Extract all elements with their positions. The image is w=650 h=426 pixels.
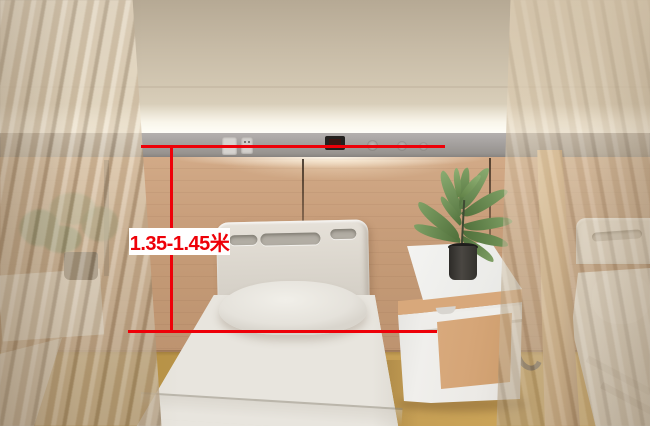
hospital-ward-render: 1.35-1.45米 bbox=[0, 0, 650, 426]
wall-panel-seam bbox=[302, 159, 304, 223]
headboard-slot bbox=[330, 229, 356, 240]
privacy-curtain-right-shading bbox=[495, 0, 650, 426]
plant-pot bbox=[449, 246, 477, 280]
switch-dot bbox=[244, 141, 246, 143]
dimension-line-bottom bbox=[128, 330, 437, 333]
headboard-slot bbox=[260, 232, 320, 245]
pillow bbox=[219, 281, 367, 335]
dimension-label: 1.35-1.45米 bbox=[129, 228, 230, 255]
dimension-line-top bbox=[141, 145, 445, 148]
switch-dot bbox=[248, 141, 250, 143]
headboard-slot bbox=[229, 235, 257, 246]
